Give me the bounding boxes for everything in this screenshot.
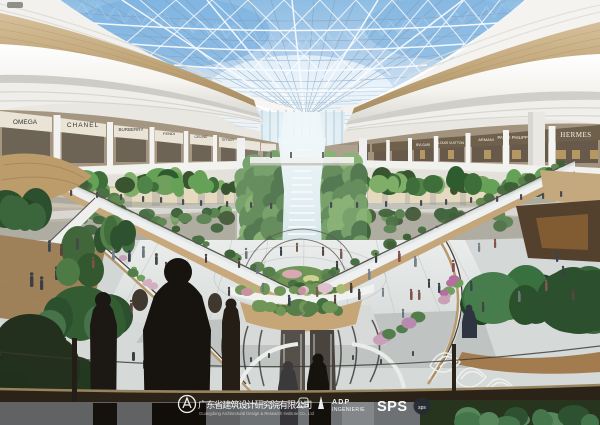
svg-text:TIFFANY: TIFFANY [221, 138, 235, 142]
svg-text:ADP: ADP [332, 399, 350, 406]
svg-text:ARMANI: ARMANI [478, 137, 494, 142]
svg-text:PATEK PHILIPPE: PATEK PHILIPPE [497, 135, 530, 140]
svg-text:CHANEL: CHANEL [67, 122, 99, 129]
svg-text:HERMES: HERMES [560, 131, 591, 139]
svg-text:BURBERRY: BURBERRY [119, 127, 144, 132]
svg-text:BVLGARI: BVLGARI [416, 143, 430, 147]
svg-text:sps: sps [418, 405, 426, 411]
svg-text:CELINE: CELINE [195, 135, 209, 139]
svg-text:Guangdong Architectural Design: Guangdong Architectural Design & Researc… [199, 411, 315, 416]
svg-text:广东省建筑设计研究院有限公司: 广东省建筑设计研究院有限公司 [198, 399, 312, 410]
svg-text:LOUIS VUITTON: LOUIS VUITTON [438, 141, 464, 145]
svg-text:FENDI: FENDI [163, 131, 175, 136]
svg-text:SPS: SPS [377, 399, 408, 415]
svg-text:INGENIERIE: INGENIERIE [332, 407, 365, 413]
svg-text:OMEGA: OMEGA [13, 119, 38, 126]
